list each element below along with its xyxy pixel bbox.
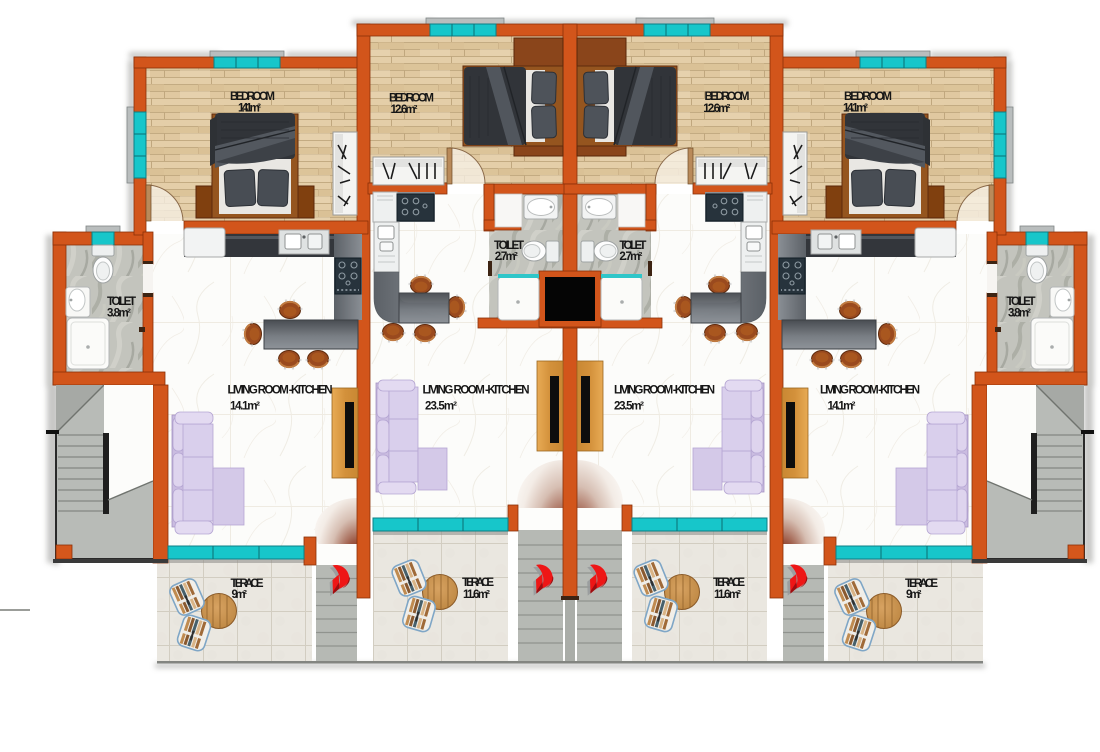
svg-text:LIVING ROOM -KITCHEN: LIVING ROOM -KITCHEN [228, 385, 333, 397]
svg-text:14.1m²: 14.1m² [843, 103, 868, 115]
svg-text:LIVING ROOM -KITCHEN: LIVING ROOM -KITCHEN [820, 385, 920, 397]
svg-text:BEDROOM: BEDROOM [844, 91, 892, 103]
svg-text:2.7m²: 2.7m² [619, 251, 642, 263]
svg-text:TERACE: TERACE [713, 577, 745, 589]
svg-text:12.6m²: 12.6m² [391, 104, 418, 116]
svg-text:TOILET: TOILET [1007, 296, 1036, 308]
svg-text:3.8m²: 3.8m² [107, 308, 131, 320]
svg-text:23.5m²: 23.5m² [425, 401, 457, 413]
svg-text:23.5m²: 23.5m² [614, 401, 644, 413]
svg-text:TOILET: TOILET [107, 296, 136, 308]
svg-text:11.6m²: 11.6m² [463, 589, 490, 601]
svg-text:TERACE: TERACE [462, 577, 494, 589]
svg-text:12.6m²: 12.6m² [703, 103, 730, 115]
svg-text:LIVING ROOM -KITCHEN: LIVING ROOM -KITCHEN [614, 385, 715, 397]
svg-text:3.8m²: 3.8m² [1008, 308, 1031, 320]
svg-text:BEDROOM: BEDROOM [230, 91, 275, 103]
svg-text:14.1m²: 14.1m² [828, 401, 856, 413]
svg-text:11.6m²: 11.6m² [714, 589, 741, 601]
svg-text:BEDROOM: BEDROOM [389, 93, 434, 105]
svg-text:2.7m²: 2.7m² [495, 251, 518, 263]
svg-text:14.1m²: 14.1m² [230, 401, 260, 413]
svg-text:14.1m²: 14.1m² [238, 103, 261, 115]
svg-text:9m²: 9m² [232, 589, 248, 601]
svg-text:9m²: 9m² [906, 589, 922, 601]
svg-text:LIVING ROOM -KITCHEN: LIVING ROOM -KITCHEN [423, 385, 530, 397]
svg-text:BEDROOM: BEDROOM [705, 91, 750, 103]
